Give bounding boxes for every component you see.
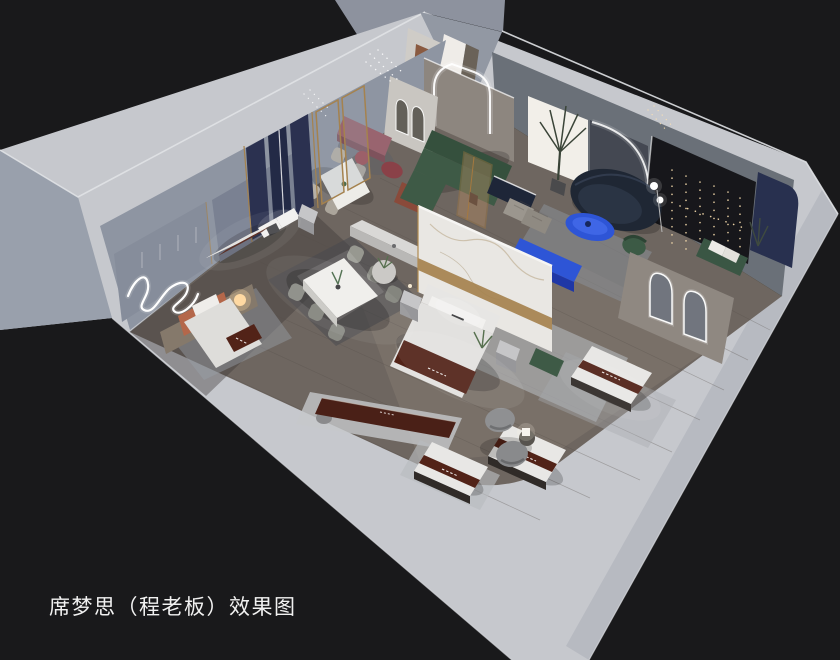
arch-niche (396, 100, 408, 135)
arch-mirror (684, 291, 706, 342)
glow-table-lamp (234, 294, 246, 306)
wood-glass-screen (457, 152, 492, 228)
showroom-render: 席梦思（程老板）效果图 (0, 0, 840, 660)
screen-frame (457, 152, 492, 228)
caption: 席梦思（程老板）效果图 (49, 591, 297, 621)
nightstand-lamp (408, 284, 412, 288)
console-decor (392, 244, 396, 248)
arch-niche (412, 107, 424, 142)
table-decor (585, 221, 591, 227)
lamp-halo (517, 423, 535, 441)
lamp-globe (650, 182, 658, 190)
render-canvas (0, 0, 840, 660)
round-side-table (372, 260, 396, 284)
arch-mirror (650, 273, 672, 324)
